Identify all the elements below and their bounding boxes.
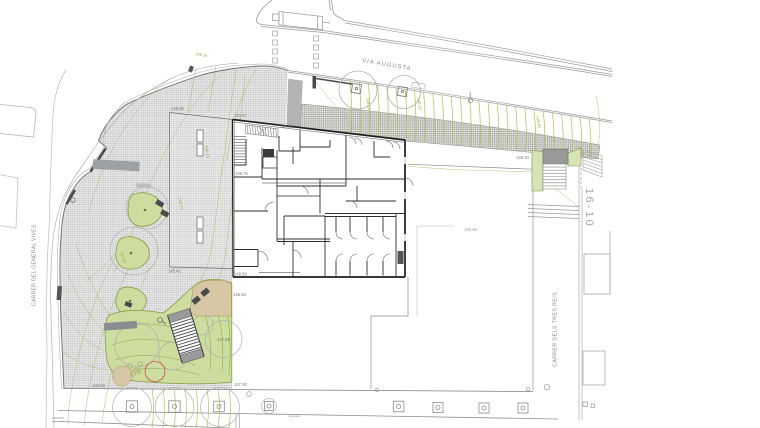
svg-text:CARRER DELS TRES REIS: CARRER DELS TRES REIS [553, 292, 559, 367]
svg-text:CARRER DEL GENERAL VIVES: CARRER DEL GENERAL VIVES [32, 224, 38, 306]
svg-text:149.56: 149.56 [234, 272, 247, 277]
svg-text:145.46: 145.46 [464, 227, 477, 232]
svg-text:147.68: 147.68 [217, 337, 230, 342]
svg-text:149.75: 149.75 [235, 171, 248, 176]
svg-text:143.46: 143.46 [280, 124, 293, 129]
svg-text:147.38: 147.38 [234, 382, 247, 387]
svg-text:148.20: 148.20 [516, 155, 529, 160]
svg-text:149.55: 149.55 [171, 106, 184, 111]
svg-text:145.46: 145.46 [233, 292, 246, 297]
svg-text:145.41: 145.41 [168, 269, 181, 274]
svg-text:16-10: 16-10 [583, 188, 595, 228]
svg-text:143.57: 143.57 [234, 113, 247, 118]
svg-text:148.08: 148.08 [92, 383, 105, 388]
